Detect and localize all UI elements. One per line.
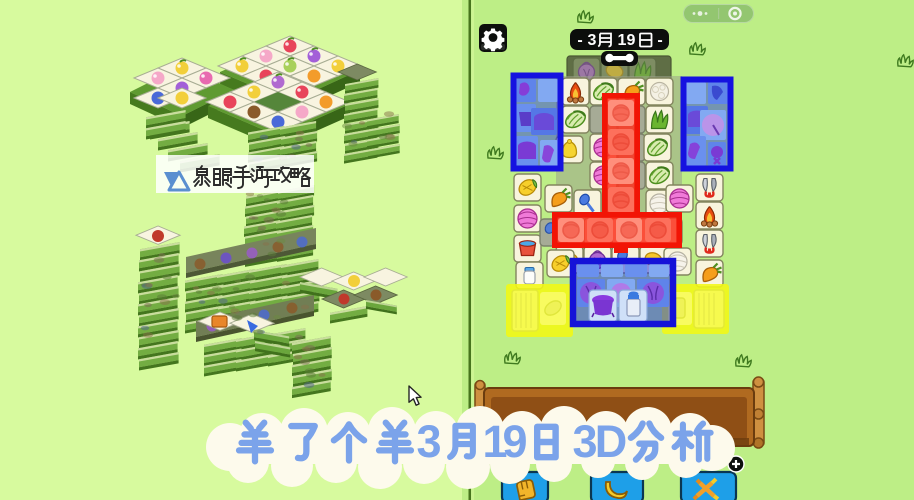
svg-text:1: 1 — [618, 32, 627, 49]
svg-text:3: 3 — [572, 416, 597, 467]
svg-text:-: - — [577, 32, 582, 49]
svg-text:-: - — [657, 32, 662, 49]
svg-text:3: 3 — [416, 416, 441, 467]
svg-text:9: 9 — [502, 416, 527, 467]
svg-text:3: 3 — [588, 32, 597, 49]
svg-text:D: D — [595, 416, 628, 467]
svg-text:9: 9 — [627, 32, 636, 49]
